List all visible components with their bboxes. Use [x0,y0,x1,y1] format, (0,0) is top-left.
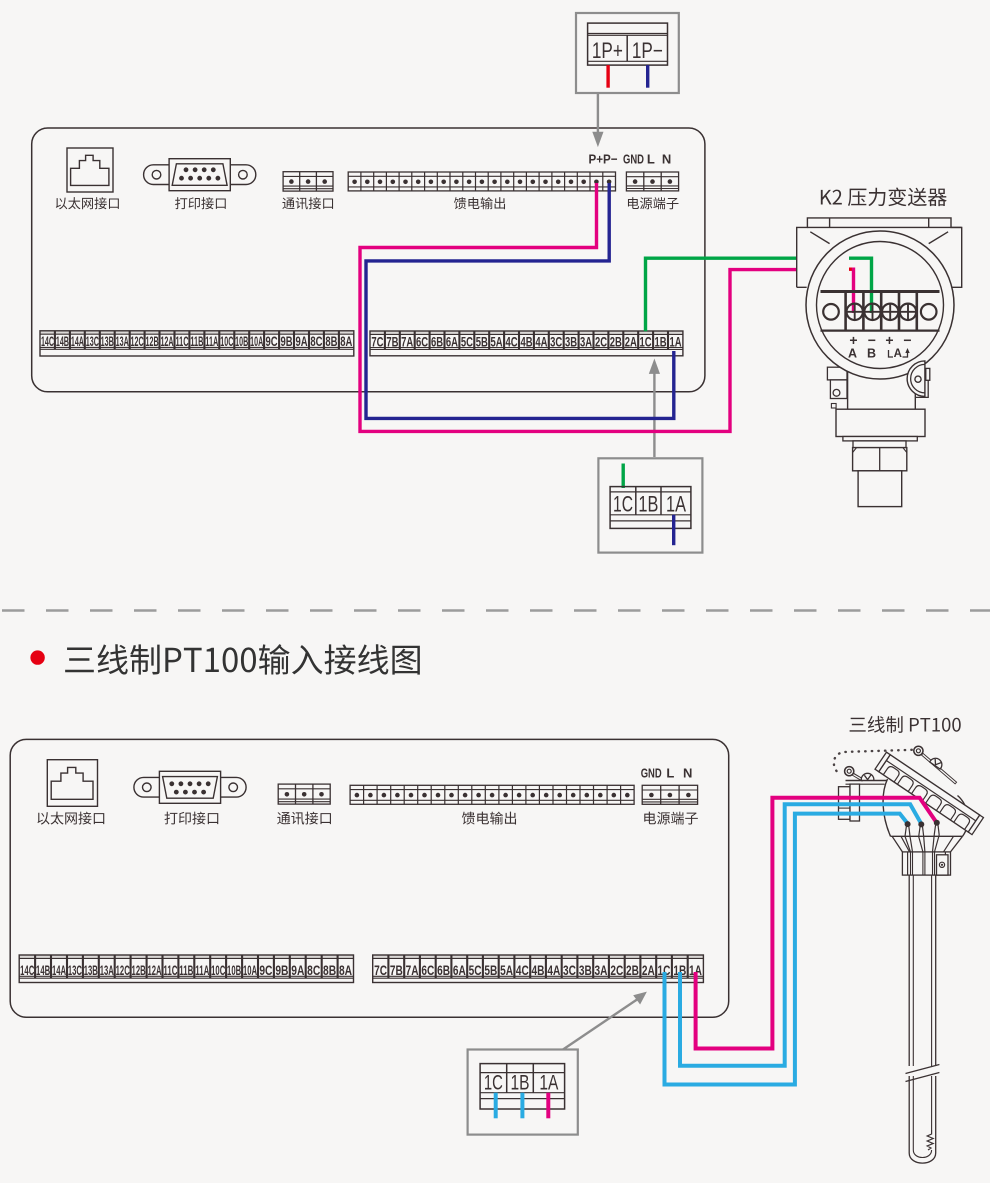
svg-text:10A: 10A [243,963,257,979]
svg-text:1P−: 1P− [632,38,663,63]
svg-text:7A: 7A [406,963,419,979]
svg-text:5C: 5C [461,334,473,349]
svg-text:11A: 11A [195,963,209,979]
svg-text:1A: 1A [669,334,681,349]
svg-text:12C: 12C [131,334,144,349]
svg-text:3A: 3A [580,334,592,349]
svg-text:6B: 6B [431,334,443,349]
svg-text:10A: 10A [250,334,263,349]
svg-text:12B: 12B [146,334,159,349]
svg-text:9B: 9B [275,963,288,979]
svg-text:8B: 8B [323,963,336,979]
svg-text:7C: 7C [371,334,383,349]
svg-text:12A: 12A [160,334,173,349]
svg-text:B: B [867,347,876,361]
svg-text:6C: 6C [416,334,428,349]
svg-text:3C: 3C [563,963,576,979]
svg-text:11A: 11A [205,334,218,349]
svg-text:2B: 2B [610,334,622,349]
svg-text:14C: 14C [20,963,34,979]
svg-text:12B: 12B [132,963,146,979]
svg-text:1C: 1C [484,1072,503,1095]
svg-text:7B: 7B [386,334,398,349]
svg-text:7C: 7C [374,963,387,979]
svg-text:13A: 13A [116,334,129,349]
svg-text:4C: 4C [505,334,517,349]
svg-text:8A: 8A [340,334,352,349]
svg-text:1C: 1C [640,334,652,349]
svg-text:7A: 7A [401,334,413,349]
svg-text:1B: 1B [638,492,658,517]
svg-text:2C: 2C [610,963,623,979]
svg-text:11C: 11C [163,963,177,979]
svg-text:N: N [683,766,692,781]
svg-text:A: A [848,347,857,361]
svg-text:11B: 11B [190,334,203,349]
svg-text:14C: 14C [41,334,54,349]
svg-text:GND: GND [641,766,662,781]
svg-text:N: N [662,152,671,167]
svg-text:4A: 4A [535,334,547,349]
svg-text:1P+: 1P+ [592,38,623,63]
svg-text:1B: 1B [654,334,666,349]
svg-text:9A: 9A [291,963,304,979]
svg-text:6B: 6B [437,963,450,979]
svg-text:8A: 8A [339,963,352,979]
svg-text:3B: 3B [565,334,577,349]
svg-text:13A: 13A [100,963,114,979]
svg-text:4A: 4A [547,963,560,979]
svg-text:10C: 10C [211,963,225,979]
svg-text:5A: 5A [491,334,503,349]
svg-text:13C: 13C [86,334,99,349]
svg-text:1A: 1A [666,492,686,517]
svg-text:14A: 14A [52,963,66,979]
svg-text:−: − [903,332,911,348]
svg-text:14B: 14B [36,963,50,979]
svg-text:12A: 12A [147,963,161,979]
svg-text:6A: 6A [446,334,458,349]
svg-text:3B: 3B [579,963,592,979]
svg-text:5B: 5B [476,334,488,349]
svg-text:3C: 3C [550,334,562,349]
svg-text:+: + [885,332,893,348]
svg-text:L: L [666,766,674,781]
svg-text:10C: 10C [220,334,233,349]
svg-text:P+P−: P+P− [589,152,618,167]
svg-text:6C: 6C [421,963,434,979]
svg-text:6A: 6A [453,963,466,979]
svg-text:GND: GND [623,152,644,167]
svg-text:2A: 2A [642,963,655,979]
svg-text:9C: 9C [266,334,278,349]
svg-text:9C: 9C [259,963,272,979]
svg-text:2A: 2A [625,334,637,349]
svg-text:2B: 2B [626,963,639,979]
svg-text:4B: 4B [520,334,532,349]
svg-text:L: L [647,152,655,167]
svg-text:10B: 10B [235,334,248,349]
svg-text:13B: 13B [84,963,98,979]
svg-text:10B: 10B [227,963,241,979]
svg-text:8C: 8C [307,963,320,979]
svg-text:4C: 4C [516,963,529,979]
svg-text:5C: 5C [469,963,482,979]
svg-text:14A: 14A [71,334,84,349]
svg-text:7B: 7B [390,963,403,979]
svg-text:11B: 11B [179,963,193,979]
svg-text:12C: 12C [116,963,130,979]
svg-text:1A: 1A [539,1072,558,1095]
svg-text:13B: 13B [101,334,114,349]
svg-text:8B: 8B [325,334,337,349]
svg-text:8C: 8C [310,334,322,349]
svg-text:9B: 9B [281,334,293,349]
svg-text:3A: 3A [595,963,608,979]
svg-text:2C: 2C [595,334,607,349]
svg-text:11C: 11C [175,334,188,349]
svg-text:A: A [894,348,902,360]
svg-text:1B: 1B [511,1072,530,1095]
svg-text:4B: 4B [532,963,545,979]
svg-text:5B: 5B [484,963,497,979]
svg-text:1C: 1C [613,492,633,517]
svg-text:9A: 9A [295,334,307,349]
svg-text:5A: 5A [500,963,513,979]
svg-text:14B: 14B [56,334,69,349]
svg-text:13C: 13C [68,963,82,979]
